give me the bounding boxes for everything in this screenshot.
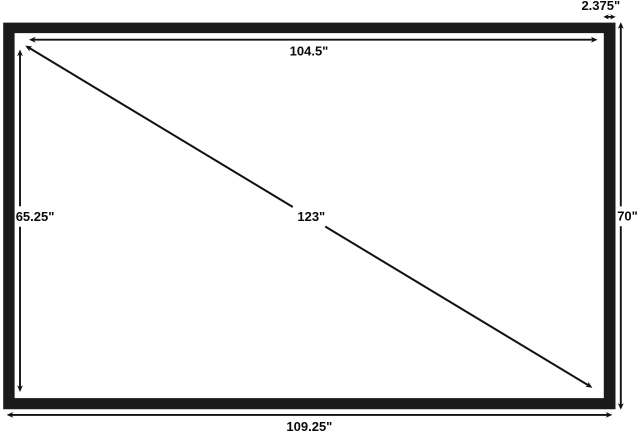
svg-text:65.25": 65.25": [16, 209, 55, 224]
svg-text:70": 70": [617, 209, 638, 224]
svg-text:104.5": 104.5": [290, 44, 329, 59]
svg-text:2.375": 2.375": [581, 0, 620, 13]
svg-text:109.25": 109.25": [286, 419, 332, 434]
svg-text:123": 123": [297, 209, 325, 224]
